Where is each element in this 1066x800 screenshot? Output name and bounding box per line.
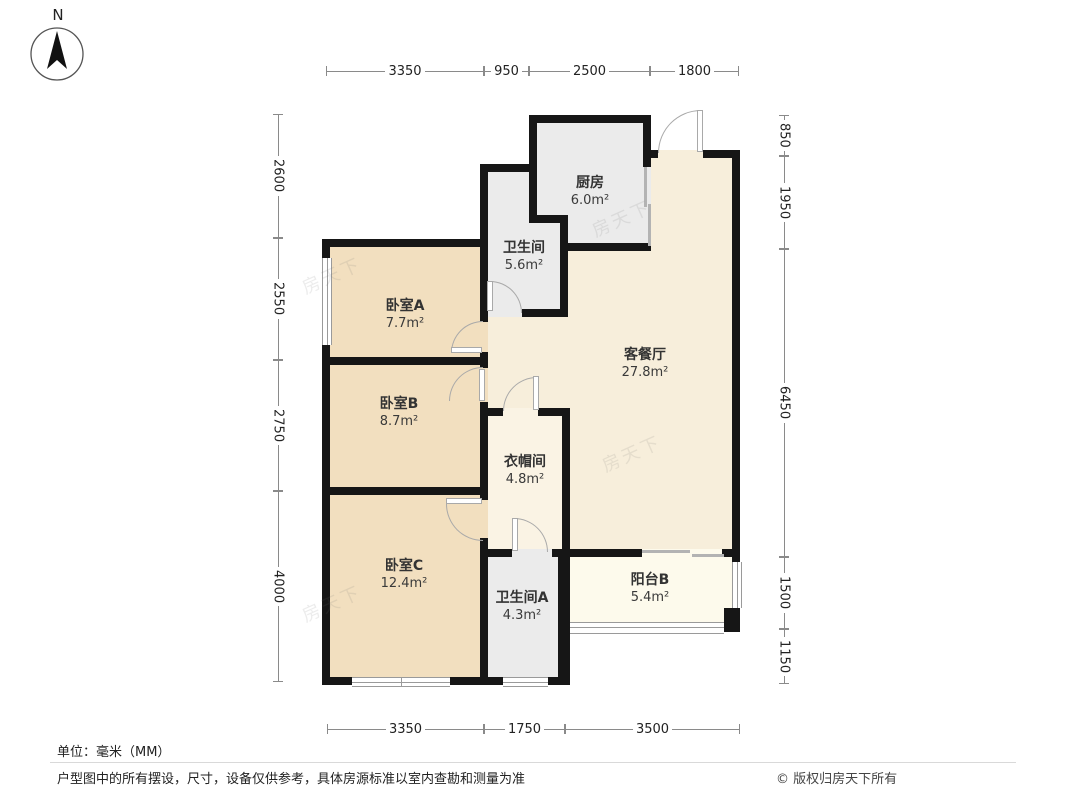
room-label-bedroom-b: 卧室B 8.7m²	[344, 396, 454, 430]
room-label-bedroom-a: 卧室A 7.7m²	[350, 298, 460, 332]
footer-divider	[50, 762, 1016, 763]
north-indicator: N	[28, 6, 88, 86]
wall-segment	[643, 123, 651, 167]
wall-segment	[651, 150, 658, 158]
dimension-right: 6450	[777, 249, 791, 557]
dimension-bottom: 3350	[327, 722, 484, 736]
window-bedroom-c	[352, 677, 450, 687]
wall-segment	[322, 345, 330, 677]
room-label-bedroom-c: 卧室C 12.4m²	[349, 558, 459, 592]
wall-segment	[322, 357, 488, 365]
room-label-bathroom-a: 卫生间A 4.3m²	[467, 590, 577, 624]
bathroom-a-door-leaf	[512, 518, 518, 551]
wall-segment	[450, 677, 503, 685]
wall-segment	[322, 239, 488, 247]
wall-segment	[724, 608, 740, 632]
entry-door-arc	[658, 110, 701, 153]
closet-door-leaf	[533, 376, 539, 410]
dimension-bottom: 1750	[484, 722, 565, 736]
wall-segment	[480, 164, 537, 172]
wall-segment	[732, 150, 740, 562]
disclaimer-text: 户型图中的所有摆设，尺寸，设备仅供参考，具体房源标准以室内查勘和测量为准	[57, 768, 525, 787]
dimension-top: 950	[484, 64, 529, 78]
wall-segment	[322, 487, 488, 495]
room-living-floor	[568, 251, 651, 549]
room-label-living-dining: 客餐厅 27.8m²	[590, 347, 700, 381]
north-arrow-icon	[28, 24, 88, 86]
dimension-right: 850	[777, 115, 791, 156]
entry-door-leaf	[697, 110, 703, 152]
bathroom-door-leaf	[487, 281, 493, 311]
balcony-sliding-door	[642, 550, 690, 553]
wall-segment	[570, 549, 642, 557]
wall-segment	[322, 239, 330, 258]
wall-segment	[480, 408, 503, 416]
dimension-left: 2600	[271, 114, 285, 238]
balcony-sliding-door	[692, 554, 724, 557]
dimension-left: 2550	[271, 238, 285, 360]
dimension-right: 1150	[777, 629, 791, 684]
room-label-bathroom: 卫生间 5.6m²	[469, 240, 579, 274]
bedroom-a-door-leaf	[451, 347, 482, 353]
bedroom-b-door-leaf	[479, 369, 485, 401]
dimension-bottom: 3500	[565, 722, 740, 736]
copyright-text: © 版权归房天下所有	[776, 768, 897, 787]
dimension-right: 1950	[777, 156, 791, 249]
wall-segment	[322, 677, 352, 685]
bedroom-c-door-leaf	[446, 498, 482, 504]
dimension-left: 4000	[271, 491, 285, 682]
wall-segment	[529, 115, 651, 123]
balcony-railing	[570, 622, 724, 634]
window-bathroom-a	[503, 677, 548, 687]
window-balcony	[732, 562, 742, 608]
wall-segment	[480, 164, 488, 247]
room-label-closet: 衣帽间 4.8m²	[470, 454, 580, 488]
floorplan-page: N	[0, 0, 1066, 800]
dimension-top: 3350	[326, 64, 484, 78]
north-label: N	[28, 6, 88, 24]
wall-segment	[480, 549, 512, 557]
dimension-left: 2750	[271, 360, 285, 491]
room-label-balcony-b: 阳台B 5.4m²	[595, 572, 705, 606]
unit-note: 单位：毫米（MM）	[57, 741, 170, 760]
dimension-top: 1800	[650, 64, 739, 78]
dimension-right: 1500	[777, 557, 791, 629]
wall-segment	[480, 352, 488, 368]
dimension-top: 2500	[529, 64, 650, 78]
wall-segment	[522, 309, 568, 317]
